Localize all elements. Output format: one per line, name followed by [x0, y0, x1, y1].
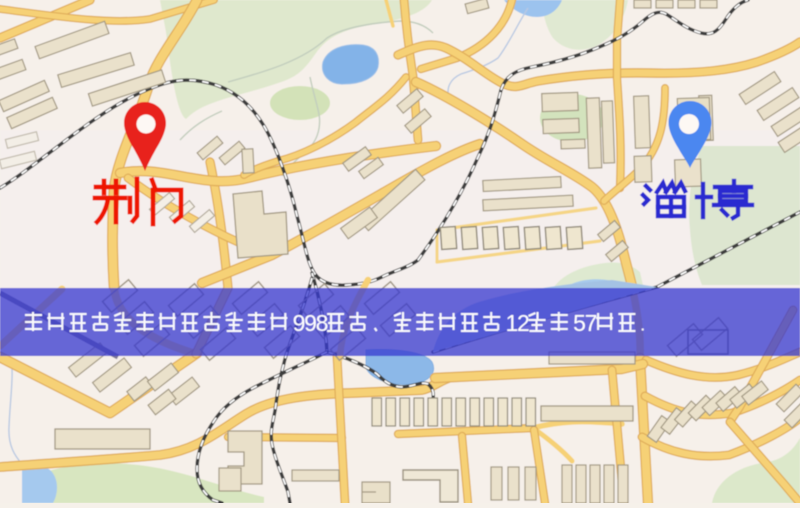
- svg-text:8: 8: [316, 310, 329, 336]
- svg-text:2: 2: [517, 310, 530, 336]
- svg-text:7: 7: [585, 310, 598, 336]
